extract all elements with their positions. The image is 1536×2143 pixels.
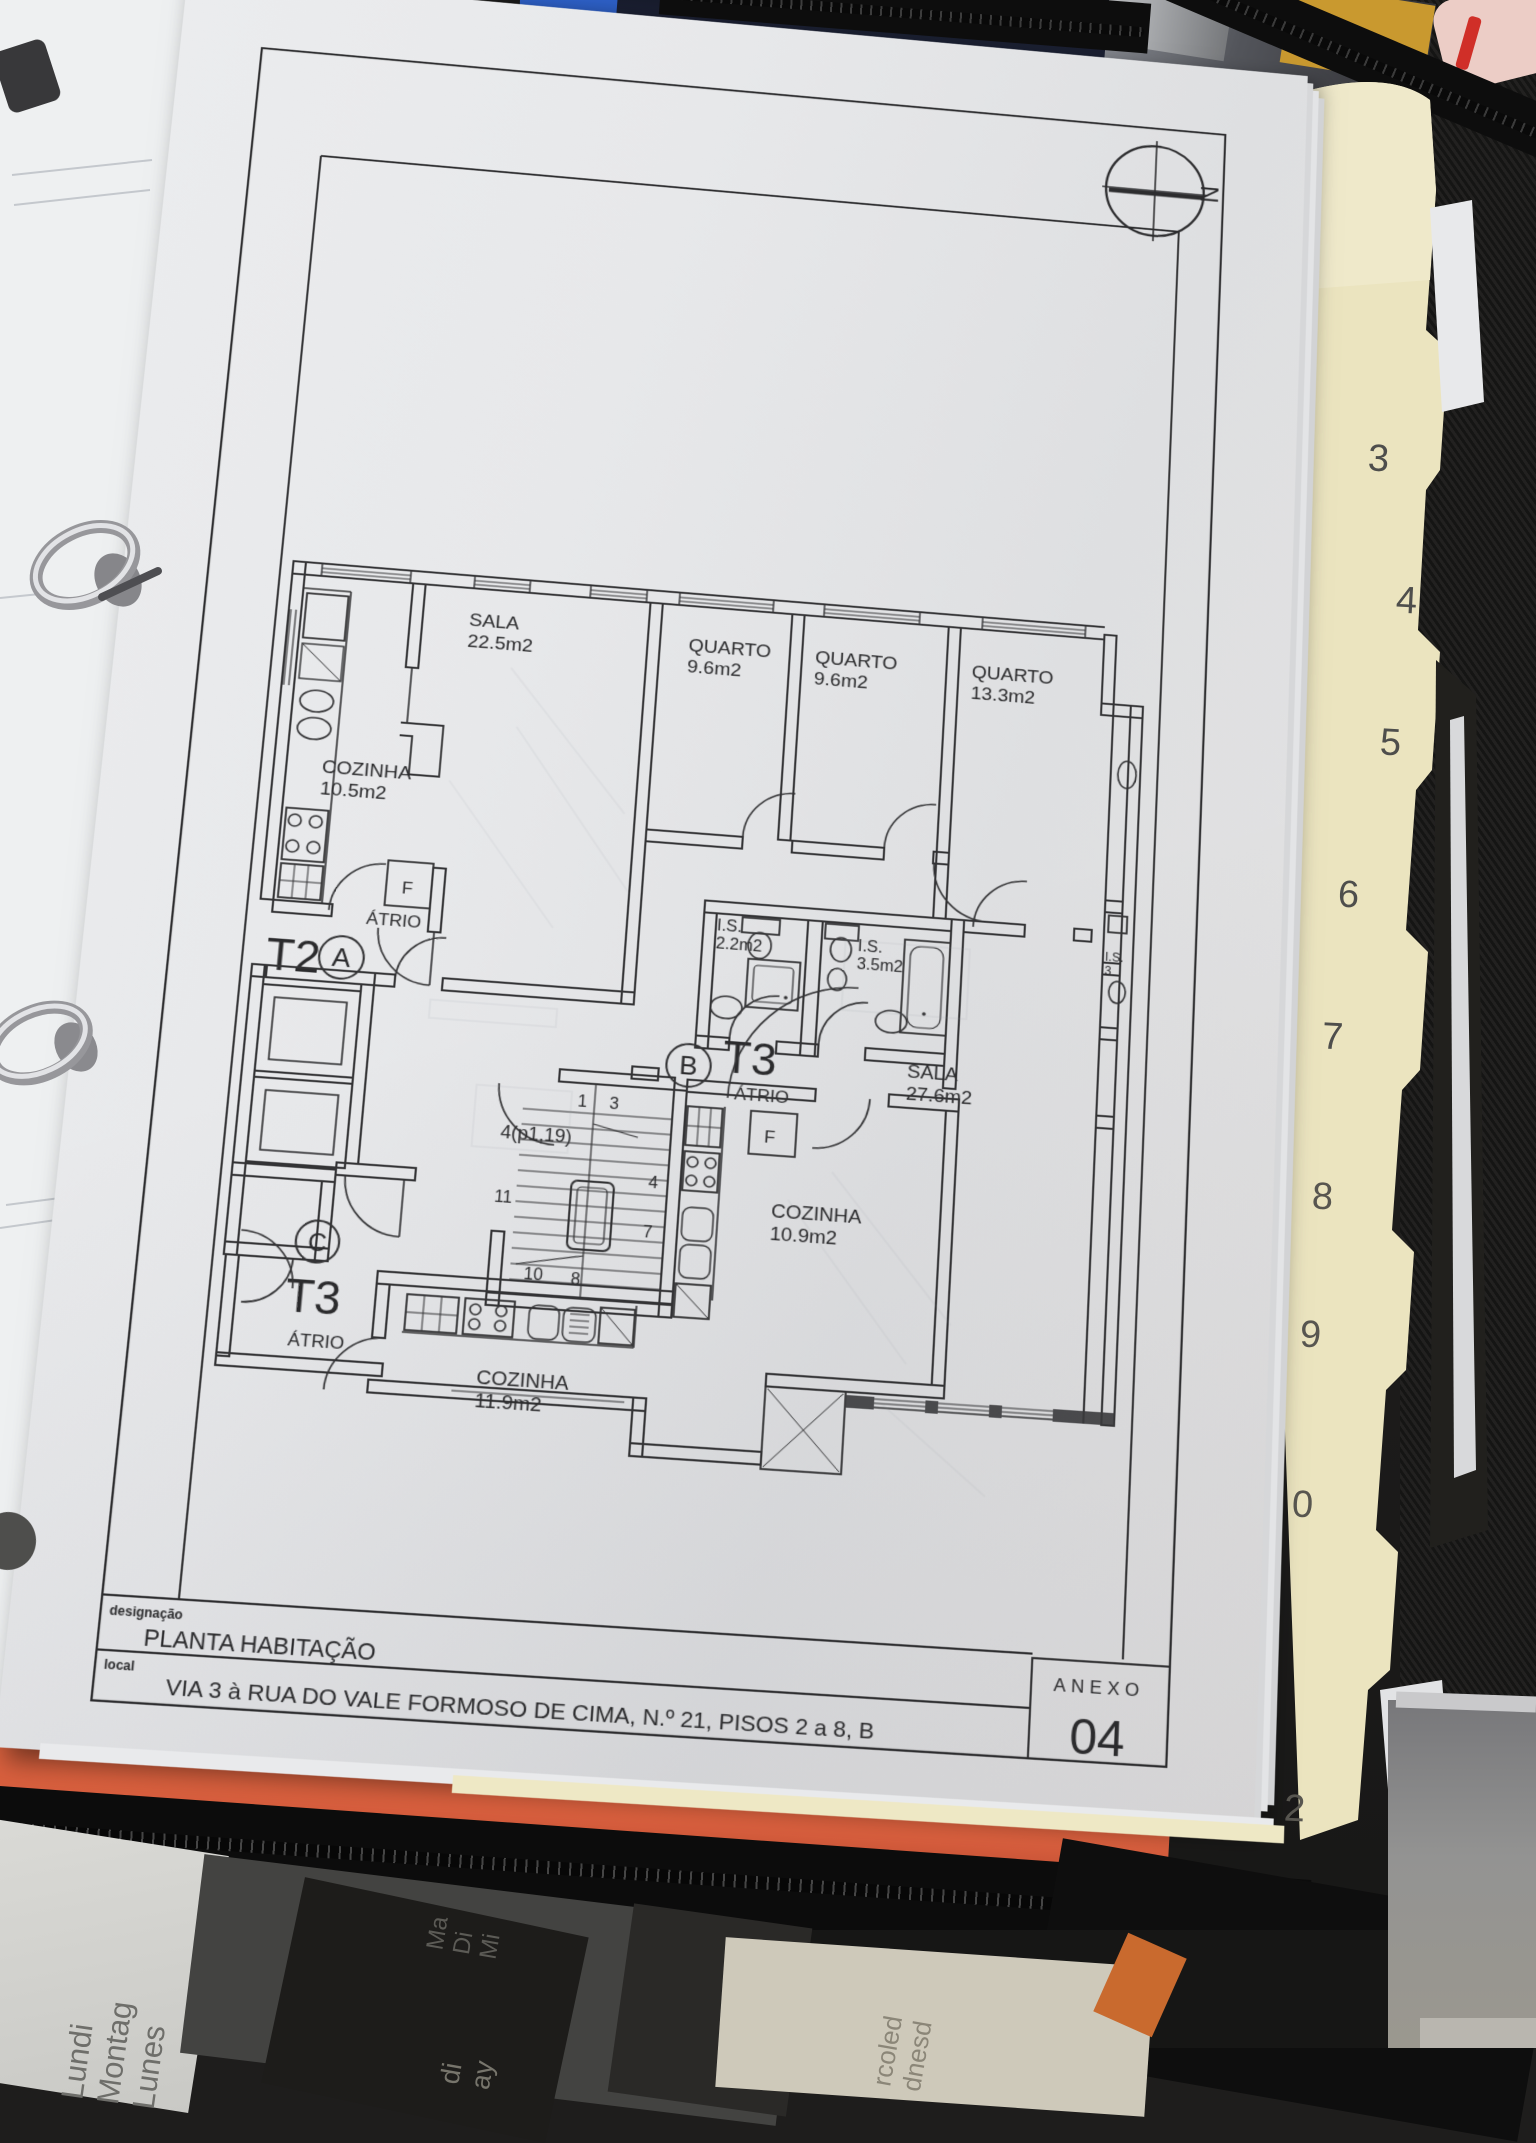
svg-text:I.S.: I.S. [1105,951,1124,965]
svg-text:7: 7 [642,1223,653,1242]
svg-text:22.5m2: 22.5m2 [467,631,534,656]
svg-text:11.9m2: 11.9m2 [474,1389,543,1416]
svg-text:ÁTRIO: ÁTRIO [365,908,422,932]
svg-text:4(p1,19): 4(p1,19) [500,1121,573,1148]
svg-text:local: local [103,1658,135,1674]
svg-text:9.6m2: 9.6m2 [813,668,868,692]
svg-text:SALA: SALA [468,609,521,633]
svg-text:13.3m2: 13.3m2 [970,683,1035,708]
svg-text:F: F [401,879,414,899]
svg-text:3.5m2: 3.5m2 [856,955,903,976]
svg-text:B: B [678,1052,698,1082]
svg-text:11: 11 [494,1188,513,1208]
svg-text:T2: T2 [264,929,323,983]
svg-text:3: 3 [1104,965,1111,978]
svg-text:4: 4 [648,1174,659,1193]
svg-text:1: 1 [577,1092,588,1111]
svg-text:04: 04 [1068,1709,1126,1768]
svg-text:SALA: SALA [907,1060,960,1085]
svg-text:designação: designação [109,1604,184,1622]
svg-text:10.9m2: 10.9m2 [769,1223,837,1249]
svg-text:2.2m2: 2.2m2 [715,935,762,956]
svg-text:F: F [764,1127,776,1147]
svg-text:T3: T3 [721,1032,778,1086]
svg-text:ANEXO: ANEXO [1053,1675,1145,1701]
svg-text:C: C [307,1227,328,1257]
svg-text:N: N [1194,185,1222,204]
svg-text:3: 3 [609,1095,620,1114]
svg-text:8: 8 [570,1270,581,1289]
svg-text:ÁTRIO: ÁTRIO [287,1329,345,1354]
svg-text:9.6m2: 9.6m2 [686,656,741,680]
svg-text:I.S.: I.S. [716,917,742,937]
svg-text:10.5m2: 10.5m2 [319,778,387,804]
